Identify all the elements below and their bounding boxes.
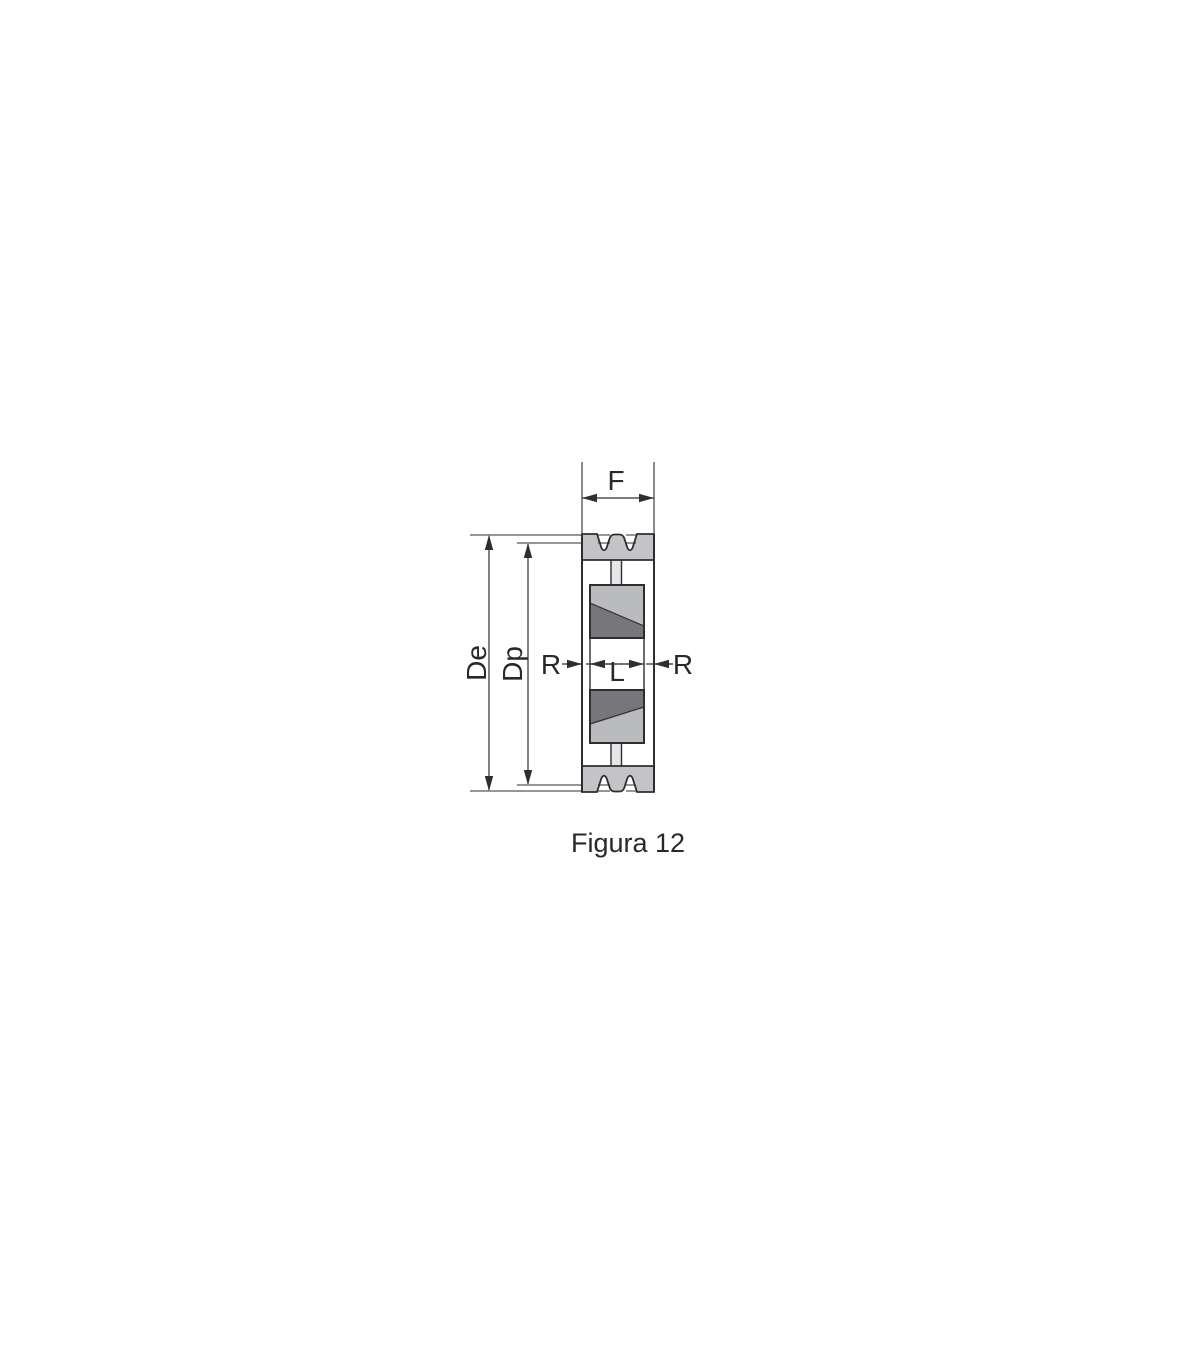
rim-grooves-bottom <box>582 766 654 792</box>
de-arrowhead-bottom <box>485 776 493 791</box>
r-left-label: R <box>541 649 561 680</box>
rim-grooves-top <box>582 534 654 560</box>
hub-block-upper <box>590 585 644 638</box>
dp-label: Dp <box>497 646 528 682</box>
l-arrowhead-right <box>629 660 644 668</box>
f-label: F <box>607 465 624 496</box>
r-right-label: R <box>673 649 693 680</box>
figure-12-page: F De Dp R L R Figura 12 <box>0 0 1200 1372</box>
f-arrowhead-right <box>639 494 654 502</box>
de-label: De <box>461 645 492 681</box>
r-right-arrowhead <box>654 660 669 668</box>
dimension-L: L <box>590 656 644 687</box>
pulley-section-diagram: F De Dp R L R Figura 12 <box>0 0 1200 1372</box>
r-left-arrowhead <box>567 660 582 668</box>
dp-arrowhead-top <box>524 543 532 558</box>
dp-arrowhead-bottom <box>524 770 532 785</box>
l-label: L <box>609 656 625 687</box>
dimension-R-right: R <box>654 649 693 680</box>
dimension-F: F <box>582 462 654 533</box>
web-stem-bottom <box>611 740 622 767</box>
l-arrowhead-left <box>590 660 605 668</box>
de-arrowhead-top <box>485 535 493 550</box>
figure-caption: Figura 12 <box>571 828 685 858</box>
f-arrowhead-left <box>582 494 597 502</box>
hub-block-lower <box>590 690 644 743</box>
dimension-R-left: R <box>541 649 582 680</box>
web-stem-top <box>611 559 622 586</box>
